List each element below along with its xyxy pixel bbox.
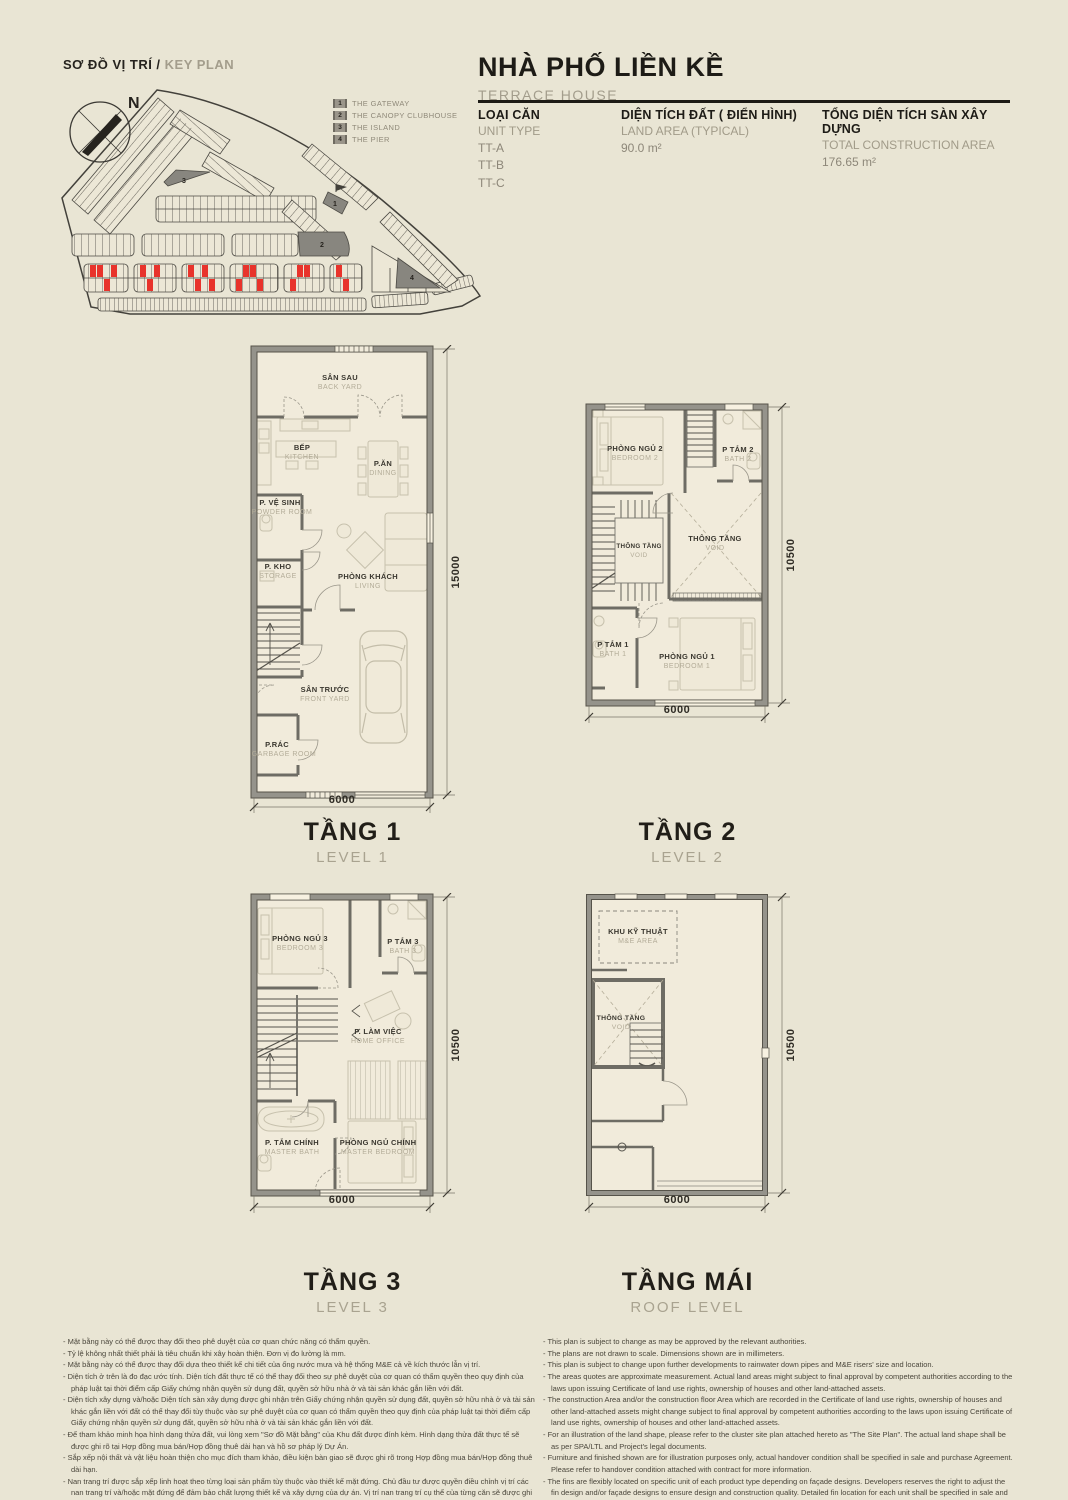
dim-height-level2: 10500	[785, 538, 797, 571]
room-label-voidstair-en: VOID	[630, 552, 647, 559]
room-label-garbage-vn: P.RÁC	[265, 740, 289, 749]
area-1-number: 1	[333, 201, 337, 208]
plan-title-level3: TẦNG 3 LEVEL 3	[240, 1268, 465, 1316]
dim-height-level3: 10500	[450, 1028, 462, 1061]
plan-title-level2-vn: TẦNG 2	[575, 818, 800, 847]
room-label-void-vn: THÔNG TẦNG	[688, 533, 741, 543]
disclaimer-line-vn: - Mặt bằng này có thể được thay đổi dựa …	[63, 1359, 535, 1371]
room-label-roofvoid-en: VOID	[612, 1024, 631, 1031]
dim-height-roof: 10500	[785, 1028, 797, 1061]
disclaimer-line-vn: - Để tham khảo minh họa hình dạng thửa đ…	[63, 1429, 535, 1452]
room-label-bath2-en: BATH 2	[725, 456, 752, 463]
disclaimer-line-vn: - Mặt bằng này có thể được thay đổi theo…	[63, 1336, 535, 1348]
disclaimer-line-vn: - Diện tích ở trên là đo đạc ước tính. D…	[63, 1371, 535, 1394]
area-3-number: 3	[182, 178, 186, 185]
disclaimer-line-en: - The fins are flexibly located on speci…	[543, 1476, 1013, 1500]
disclaimer-line-en: - Furniture and finished shown are for i…	[543, 1452, 1013, 1475]
disclaimer-line-en: - This plan is subject to change upon fu…	[543, 1359, 1013, 1371]
room-label-bath2-vn: P TẮM 2	[722, 445, 754, 454]
room-label-powder-en: POWDER ROOM	[252, 509, 313, 516]
room-label-me-en: M&E AREA	[618, 938, 658, 945]
disclaimer-line-vn: - Tỷ lệ không nhất thiết phải là tiêu ch…	[63, 1348, 535, 1360]
dim-width-roof: 6000	[664, 1194, 690, 1206]
brochure-page: SƠ ĐỒ VỊ TRÍ / KEY PLAN	[0, 0, 1068, 1500]
floorplan-roof: KHU KỸ THUẬT M&E AREA THÔNG TẦNG VOID 10…	[575, 893, 800, 1243]
room-label-bedroom3-en: BEDROOM 3	[277, 945, 324, 952]
plan-title-level2-en: LEVEL 2	[575, 849, 800, 866]
room-label-garbage-en: GARBAGE ROOM	[252, 751, 316, 758]
room-label-living-vn: PHÒNG KHÁCH	[338, 572, 398, 581]
room-label-bedroom1-en: BEDROOM 1	[664, 663, 711, 670]
unit-type-value: TT-B	[478, 157, 613, 174]
floorplan-level2: PHÒNG NGỦ 2 BEDROOM 2 P TẮM 2 BATH 2 THÔ…	[575, 403, 800, 743]
disclaimer-line-en: - The construction Area and/or the const…	[543, 1394, 1013, 1429]
disclaimer-line-vn: - Sắp xếp nội thất và vật liệu hoàn thiệ…	[63, 1452, 535, 1475]
keyplan-legend: 1 THE GATEWAY 2 THE CANOPY CLUBHOUSE 3 T…	[333, 99, 457, 144]
room-label-bath1-vn: P TẮM 1	[597, 640, 629, 649]
legend-chip: 1	[333, 99, 347, 108]
room-label-bath3-vn: P TẮM 3	[387, 937, 419, 946]
room-label-dining-en: DINING	[369, 470, 397, 477]
disclaimer-line-en: - For an illustration of the land shape,…	[543, 1429, 1013, 1452]
room-label-dining-vn: P.ĂN	[374, 459, 392, 468]
legend-chip: 4	[333, 135, 347, 144]
unit-type-label-en: UNIT TYPE	[478, 124, 613, 138]
plan-title-roof-vn: TẦNG MÁI	[575, 1268, 800, 1297]
construction-area-label-en: TOTAL CONSTRUCTION AREA	[822, 138, 1017, 152]
plan-title-level1-vn: TẦNG 1	[240, 818, 465, 847]
legend-label: THE CANOPY CLUBHOUSE	[352, 111, 457, 120]
room-label-kitchen-en: KITCHEN	[285, 454, 319, 461]
room-label-masterbath-vn: P. TẮM CHÍNH	[265, 1138, 319, 1147]
plan-title-level2: TẦNG 2 LEVEL 2	[575, 818, 800, 866]
disclaimer-vn: - Mặt bằng này có thể được thay đổi theo…	[63, 1336, 535, 1500]
floorplan-level1: SÂN SAU BACK YARD BẾP KITCHEN P.ĂN DININ…	[240, 345, 465, 817]
room-label-bath1-en: BATH 1	[600, 651, 627, 658]
room-label-masterbed-vn: PHÒNG NGỦ CHÍNH	[340, 1138, 417, 1147]
room-label-bedroom2-en: BEDROOM 2	[612, 455, 659, 462]
compass-icon: N	[58, 86, 153, 181]
legend-item: 1 THE GATEWAY	[333, 99, 457, 108]
room-label-void-en: VOID	[705, 545, 724, 552]
area-2-number: 2	[320, 242, 324, 249]
land-area-label-vn: DIỆN TÍCH ĐẤT ( ĐIỂN HÌNH)	[621, 108, 816, 122]
spec-col-land-area: DIỆN TÍCH ĐẤT ( ĐIỂN HÌNH) LAND AREA (TY…	[621, 108, 816, 157]
room-label-bedroom2-vn: PHÒNG NGỦ 2	[607, 444, 663, 453]
disclaimer-line-en: - The plans are not drawn to scale. Dime…	[543, 1348, 1013, 1360]
disclaimer-line-en: - The areas quotes are approximate measu…	[543, 1371, 1013, 1394]
room-label-me-vn: KHU KỸ THUẬT	[608, 927, 668, 936]
room-label-kitchen-vn: BẾP	[294, 442, 310, 452]
spec-col-construction-area: TỔNG DIỆN TÍCH SÀN XÂY DỰNG TOTAL CONSTR…	[822, 108, 1017, 171]
legend-label: THE GATEWAY	[352, 99, 410, 108]
keyplan-title-vn: SƠ ĐỒ VỊ TRÍ /	[63, 57, 161, 72]
room-label-powder-vn: P. VỆ SINH	[259, 498, 300, 507]
plan-title-roof-en: ROOF LEVEL	[575, 1299, 800, 1316]
plan-title-level1: TẦNG 1 LEVEL 1	[240, 818, 465, 866]
car-icon	[360, 631, 407, 743]
legend-chip: 2	[333, 111, 347, 120]
construction-area-value: 176.65 m²	[822, 154, 1017, 171]
room-label-office-vn: P. LÀM VIỆC	[354, 1027, 402, 1036]
dim-width-level2: 6000	[664, 704, 690, 716]
legend-item: 2 THE CANOPY CLUBHOUSE	[333, 111, 457, 120]
header-rule	[478, 100, 1010, 103]
land-area-label-en: LAND AREA (TYPICAL)	[621, 124, 816, 138]
unit-type-label-vn: LOẠI CĂN	[478, 108, 613, 122]
disclaimer-line-vn: - Nan trang trí được sắp xếp linh hoạt t…	[63, 1476, 535, 1500]
legend-item: 3 THE ISLAND	[333, 123, 457, 132]
spec-col-unit-type: LOẠI CĂN UNIT TYPE TT-ATT-BTT-C	[478, 108, 613, 192]
room-label-frontyard-vn: SÂN TRƯỚC	[301, 685, 350, 694]
plot-row-terrace	[84, 264, 362, 292]
room-label-backyard-en: BACK YARD	[318, 384, 362, 391]
room-label-bedroom3-vn: PHÒNG NGỦ 3	[272, 934, 328, 943]
area-4-number: 4	[410, 275, 414, 282]
room-label-storage-vn: P. KHO	[265, 562, 292, 571]
keyplan-title-en: KEY PLAN	[161, 57, 235, 72]
room-label-frontyard-en: FRONT YARD	[300, 696, 350, 703]
dim-width-level3: 6000	[329, 1194, 355, 1206]
disclaimer-en: - This plan is subject to change as may …	[543, 1336, 1013, 1500]
keyplan-title: SƠ ĐỒ VỊ TRÍ / KEY PLAN	[63, 57, 234, 72]
disclaimer-line-vn: - Diện tích xây dựng và/hoặc Diện tích s…	[63, 1394, 535, 1429]
land-area-value: 90.0 m²	[621, 140, 816, 157]
room-label-bedroom1-vn: PHÒNG NGỦ 1	[659, 652, 715, 661]
legend-label: THE ISLAND	[352, 123, 400, 132]
room-label-backyard-vn: SÂN SAU	[322, 373, 358, 382]
unit-type-value: TT-C	[478, 175, 613, 192]
room-label-living-en: LIVING	[355, 583, 381, 590]
unit-type-values: TT-ATT-BTT-C	[478, 140, 613, 192]
floorplan-level3: PHÒNG NGỦ 3 BEDROOM 3 P TẮM 3 BATH 3 P. …	[240, 893, 465, 1243]
unit-type-value: TT-A	[478, 140, 613, 157]
disclaimer-line-en: - This plan is subject to change as may …	[543, 1336, 1013, 1348]
legend-item: 4 THE PIER	[333, 135, 457, 144]
page-title: NHÀ PHỐ LIỀN KỀ	[478, 52, 724, 83]
compass-north-label: N	[128, 95, 140, 112]
room-label-storage-en: STORAGE	[259, 573, 297, 580]
legend-label: THE PIER	[352, 135, 390, 144]
legend-chip: 3	[333, 123, 347, 132]
plan-title-level3-en: LEVEL 3	[240, 1299, 465, 1316]
plan-title-level3-vn: TẦNG 3	[240, 1268, 465, 1297]
plan-title-level1-en: LEVEL 1	[240, 849, 465, 866]
room-label-office-en: HOME OFFICE	[351, 1038, 405, 1045]
plan-title-roof: TẦNG MÁI ROOF LEVEL	[575, 1268, 800, 1316]
room-label-masterbath-en: MASTER BATH	[265, 1149, 320, 1156]
dim-height-level1: 15000	[450, 555, 462, 588]
room-label-masterbed-en: MASTER BEDROOM	[341, 1149, 415, 1156]
room-label-bath3-en: BATH 3	[390, 948, 417, 955]
plot-band-hatch-b	[170, 110, 274, 202]
dim-width-level1: 6000	[329, 794, 355, 806]
construction-area-label-vn: TỔNG DIỆN TÍCH SÀN XÂY DỰNG	[822, 108, 1017, 136]
area-the-island	[164, 170, 210, 186]
